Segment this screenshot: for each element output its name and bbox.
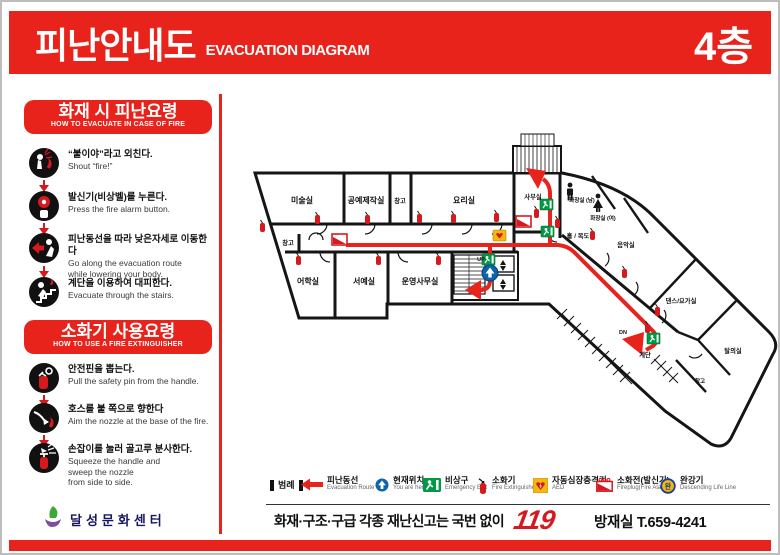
current-location-icon: [375, 478, 389, 497]
room-label: 공예제작실: [348, 195, 385, 205]
aed-icon: [533, 478, 548, 498]
room-label: 어학실: [297, 276, 319, 286]
legend-evacuation-route: 피난동선Evacuation Route: [301, 476, 374, 496]
floor-plan: 미술실 공예제작실 창고 요리실 사무실 창고 어학실 서예실 운영사무실 화장…: [2, 2, 780, 555]
room-label: 계단: [639, 350, 651, 359]
fireplug-icon: [596, 478, 613, 497]
legend-fireplug: 소화전(발신기)Fireplug(Fire Alarm): [596, 476, 670, 497]
evacuation-poster: 피난안내도 EVACUATION DIAGRAM 4층 화재 시 피난요령 HO…: [0, 0, 780, 555]
room-label: 음악실: [617, 240, 635, 249]
fire-extinguisher-icon: [478, 478, 488, 500]
room-label: 요리실: [453, 195, 475, 205]
current-location-marker: [482, 265, 498, 281]
legend-label-ko: 피난동선: [327, 476, 374, 485]
bottom-red-bar: [9, 540, 771, 551]
emergency-report-text: 화재·구조·구급 각종 재난신고는 국번 없이: [274, 511, 504, 531]
room-label: 서예실: [353, 276, 375, 286]
room-label: 댄스/요가실: [666, 296, 697, 305]
room-label: 창고: [394, 196, 406, 205]
emergency-exit-icon: [423, 478, 441, 497]
legend-label-ko: 완강기: [680, 476, 736, 485]
stairs-down-label: DN: [619, 330, 627, 336]
room-label: 창고: [282, 238, 294, 247]
legend-descending-life-line: 완 완강기Descending Life Line: [660, 476, 736, 499]
room-label: 사무실: [524, 192, 542, 201]
room-label: 창고: [695, 377, 705, 385]
room-label: 화장실 (남): [569, 196, 595, 204]
emergency-number: 119: [511, 505, 557, 536]
evacuation-route-icon: [301, 478, 323, 496]
control-room-phone: 방재실 T.659-4241: [594, 511, 706, 532]
room-label: 화장실 (여): [590, 214, 616, 222]
upper-stairs: [513, 134, 561, 173]
room-label: 탈의실: [724, 346, 742, 355]
legend-label-en: Fire Extinguisher: [492, 485, 537, 492]
legend-label-en: Evacuation Route: [327, 485, 374, 492]
legend-label-ko: 소화기: [492, 476, 537, 485]
room-label: 미술실: [291, 195, 313, 205]
room-label: 운영사무실: [402, 276, 439, 286]
legend-title: 범례: [270, 480, 303, 491]
room-label: 홀 / 복도: [567, 231, 590, 240]
map-aed-icon: [493, 230, 506, 241]
descending-life-line-icon: 완: [660, 478, 676, 499]
life-line-icon-char: 완: [665, 482, 672, 491]
legend-label-en: Descending Life Line: [680, 485, 736, 492]
legend-fire-extinguisher: 소화기Fire Extinguisher: [478, 476, 537, 500]
legend-current-location: 현재위치You are here: [375, 476, 427, 497]
stairs-up-label: UP: [477, 257, 485, 263]
